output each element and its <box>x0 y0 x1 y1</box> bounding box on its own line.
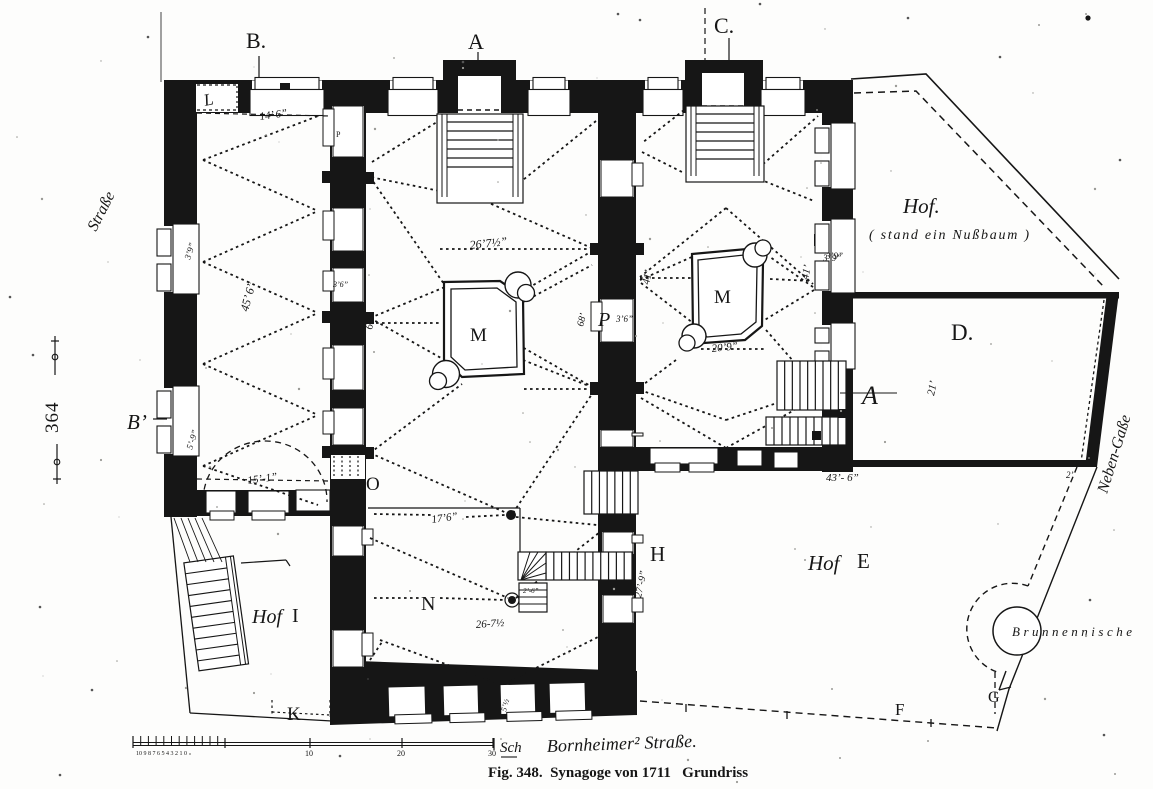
svg-text:3’ 9”: 3’ 9” <box>822 253 841 263</box>
svg-text:B.: B. <box>246 28 266 53</box>
svg-text:43’- 6”: 43’- 6” <box>826 472 859 484</box>
svg-text:I: I <box>292 605 299 627</box>
svg-text:F: F <box>895 700 904 719</box>
svg-text:B’: B’ <box>127 410 147 434</box>
svg-text:30: 30 <box>488 749 496 758</box>
svg-text:Sch: Sch <box>500 740 522 756</box>
svg-text:20: 20 <box>397 749 405 758</box>
svg-text:3’6”: 3’6” <box>615 314 633 324</box>
svg-text:G: G <box>988 689 1000 706</box>
svg-text:Fig. 348. Synagoge von 1711: Fig. 348. Synagoge von 1711 Grundriss <box>488 765 748 781</box>
svg-text:M: M <box>714 287 731 308</box>
svg-text:2’-6”: 2’-6” <box>523 587 539 595</box>
svg-text:Hof: Hof <box>807 551 843 575</box>
svg-text:10: 10 <box>305 749 313 758</box>
svg-text:K: K <box>287 704 301 725</box>
svg-text:( stand ein Nußbaum ): ( stand ein Nußbaum ) <box>869 228 1029 243</box>
svg-text:A: A <box>860 381 878 410</box>
svg-text:364: 364 <box>42 402 63 434</box>
svg-text:2’: 2’ <box>1066 470 1074 480</box>
svg-text:M: M <box>470 325 487 346</box>
svg-text:Hof: Hof <box>251 606 284 628</box>
svg-text:P: P <box>597 309 610 331</box>
svg-text:N: N <box>421 593 435 615</box>
svg-text:Hof.: Hof. <box>902 194 940 218</box>
svg-text:H: H <box>650 542 665 566</box>
svg-text:A: A <box>468 29 484 54</box>
svg-text:D.: D. <box>951 320 973 345</box>
svg-text:P: P <box>336 130 341 139</box>
svg-text:E: E <box>857 549 870 573</box>
svg-text:C.: C. <box>714 13 734 38</box>
svg-text:26-7½: 26-7½ <box>475 617 504 631</box>
svg-text:3’6”: 3’6” <box>332 280 349 289</box>
svg-text:O: O <box>366 474 380 495</box>
svg-text:10 9 8 7 6 5 4 3 2 1 0: 10 9 8 7 6 5 4 3 2 1 0 <box>136 751 187 757</box>
